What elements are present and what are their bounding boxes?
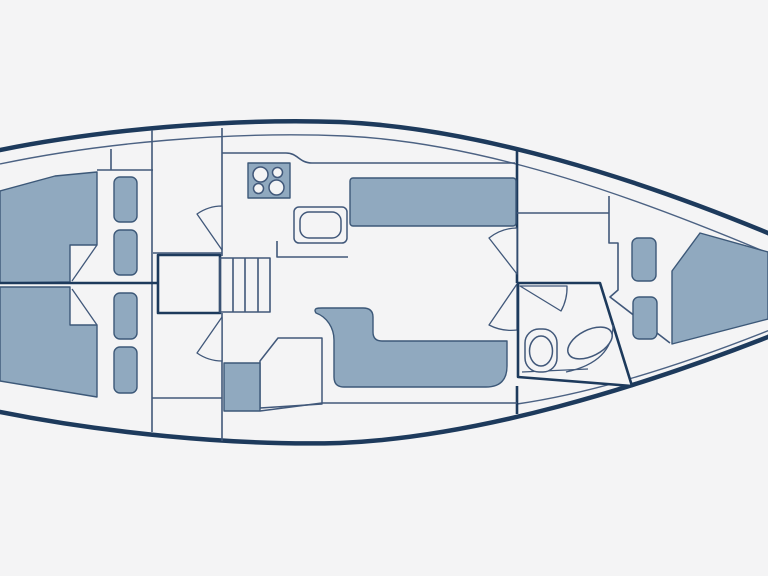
cabin-door-leaf-starboard <box>197 317 222 361</box>
sink <box>294 207 347 243</box>
burner <box>273 168 283 178</box>
burner <box>254 184 264 194</box>
galley-counter-edge <box>222 153 515 163</box>
toilet <box>525 329 557 372</box>
locker-line <box>97 149 153 170</box>
berth-fold-line <box>72 245 97 281</box>
companionway-ladder <box>220 258 270 312</box>
salon-sofa <box>315 308 507 387</box>
berth-cushion <box>114 230 137 275</box>
forward-door-leaf-starboard <box>489 284 517 330</box>
burner <box>253 167 268 182</box>
room-aft-cabin-port <box>0 149 153 283</box>
berth-cushion <box>632 238 656 281</box>
room-companionway <box>158 206 270 361</box>
burner <box>269 180 284 195</box>
cabin-door-leaf-port <box>197 206 222 250</box>
berth-cushion <box>114 347 137 393</box>
boat-floor-plan <box>0 0 768 576</box>
v-berth <box>672 233 768 344</box>
engine-box <box>158 255 220 313</box>
berth-cushion <box>633 297 657 339</box>
cabinet <box>260 338 322 408</box>
berth-fold-line <box>72 289 97 325</box>
seat-cushion <box>224 363 260 411</box>
room-aft-cabin-starboard <box>0 287 137 397</box>
stove-top <box>248 163 290 198</box>
berth-cushion <box>114 293 137 339</box>
forward-door-leaf-port <box>489 228 517 274</box>
berth-cushion <box>114 177 137 222</box>
room-head <box>518 283 632 386</box>
room-salon <box>224 178 517 411</box>
toilet-bowl <box>530 336 553 366</box>
stove <box>248 163 290 198</box>
sink-basin <box>300 212 341 238</box>
ladder-steps <box>233 258 258 312</box>
salon-settee <box>350 178 516 226</box>
